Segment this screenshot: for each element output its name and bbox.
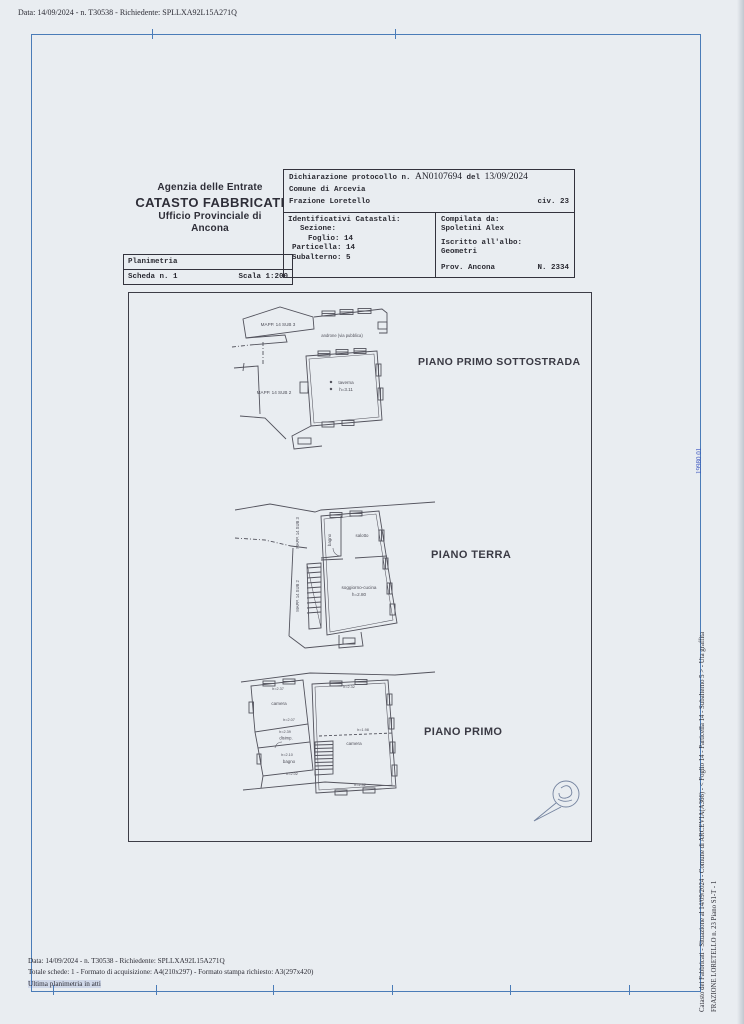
plan3-h-bottom-left: h=2.02 bbox=[286, 772, 298, 776]
plan1-androne-label: androne (via pubblica) bbox=[321, 333, 363, 338]
foglio-line: Foglio: 14 bbox=[308, 235, 431, 245]
plan3-h-disimp: h=2.39 bbox=[279, 730, 291, 734]
plan2-salotto-label: salotto bbox=[356, 533, 369, 538]
footer-last-plan-line: Ultima planimetria in atti bbox=[28, 980, 101, 988]
plan3-camera-right-label: camera bbox=[346, 741, 362, 746]
compilata-name: Spoletini Alex bbox=[441, 225, 569, 235]
frame-tick bbox=[152, 29, 153, 39]
floorplan-piano-primo: h=2.37 camera h=2.07 h=2.39 disimp. h=2.… bbox=[235, 662, 485, 817]
compilata-title: Compilata da: bbox=[441, 216, 569, 226]
comune-line: Comune di Arcevia bbox=[289, 186, 569, 196]
planimetria-sheet-row: Scheda n. 1 Scala 1:200 bbox=[124, 269, 292, 284]
plan2-bagno-label: bagno bbox=[327, 533, 332, 546]
scheda-number: Scheda n. 1 bbox=[128, 272, 178, 282]
frame-tick bbox=[510, 985, 511, 995]
particella-line: Particella: 14 bbox=[292, 244, 431, 254]
civ-number: civ. 23 bbox=[537, 198, 569, 208]
protocol-del-label: del bbox=[467, 174, 481, 182]
protocol-number: AN0107694 bbox=[415, 172, 462, 182]
frame-tick bbox=[395, 29, 396, 39]
plan3-disimp-label: disimp. bbox=[279, 736, 292, 741]
planimetria-title: Planimetria bbox=[124, 255, 292, 269]
plan2-mapp-sub3-label: MAPP. 14 SUB 3 bbox=[295, 517, 300, 549]
agency-office: CATASTO FABBRICATI bbox=[125, 195, 295, 210]
agency-province-label: Ufficio Provinciale di bbox=[125, 211, 295, 222]
plan1-labels: MAPP. 14 SUB 3 androne (via pubblica) MA… bbox=[257, 322, 364, 395]
agency-city: Ancona bbox=[125, 223, 295, 234]
plan1-mapp-sub3-label: MAPP. 14 SUB 3 bbox=[261, 322, 296, 327]
planimetria-card: Planimetria Scheda n. 1 Scala 1:200 bbox=[123, 254, 293, 285]
subalterno-line: Subalterno: 5 bbox=[292, 254, 431, 264]
footer-block: Data: 14/09/2024 - n. T30538 - Richieden… bbox=[28, 956, 313, 990]
plan3-camera-left-label: camera bbox=[271, 701, 287, 706]
plan3-walls bbox=[241, 672, 435, 795]
top-request-line: Data: 14/09/2024 - n. T30538 - Richieden… bbox=[18, 8, 237, 17]
plan1-mapp-sub2-label: MAPP. 14 SUB 2 bbox=[257, 390, 292, 395]
floorplan-piano-primo-sottostrada: MAPP. 14 SUB 3 androne (via pubblica) MA… bbox=[230, 296, 500, 461]
plan3-h-mid-left: h=2.07 bbox=[283, 718, 295, 722]
plan2-title: PIANO TERRA bbox=[431, 549, 511, 561]
albo-title: Iscritto all'albo: bbox=[441, 239, 569, 249]
floorplan-piano-terra: MAPP. 14 SUB 3 MAPP. 14 SUB 2 bagno salo… bbox=[235, 488, 485, 653]
plan1-room-label: taverna bbox=[338, 380, 354, 385]
compiler-cell: Compilata da: Spoletini Alex Iscritto al… bbox=[436, 213, 574, 278]
albo-value: Geometri bbox=[441, 248, 569, 258]
side-margin-note: Catasto dei Fabbricati - Situazione al 1… bbox=[697, 437, 720, 1012]
plan3-h-top-left: h=2.37 bbox=[272, 687, 284, 691]
sezione-line: Sezione: bbox=[300, 225, 431, 235]
scanned-cadastral-sheet: Data: 14/09/2024 - n. T30538 - Richieden… bbox=[0, 0, 744, 1024]
albo-number: N. 2334 bbox=[537, 264, 569, 274]
frame-tick bbox=[629, 985, 630, 995]
protocol-label: Dichiarazione protocollo n. bbox=[289, 174, 411, 182]
identificativi-title: Identificativi Catastali: bbox=[288, 216, 431, 226]
plan1-room-height: h=3.11 bbox=[339, 387, 353, 392]
agency-name: Agenzia delle Entrate bbox=[125, 182, 295, 193]
side-note-line1: Catasto dei Fabbricati - Situazione al 1… bbox=[697, 437, 709, 1012]
declaration-table: Dichiarazione protocollo n. AN0107694 de… bbox=[283, 169, 575, 278]
plan2-mapp-sub2-label: MAPP. 14 SUB 2 bbox=[295, 580, 300, 612]
frame-tick bbox=[392, 985, 393, 995]
plan3-title: PIANO PRIMO bbox=[424, 726, 502, 738]
cadastral-ids-cell: Identificativi Catastali: Sezione: Fogli… bbox=[284, 213, 436, 278]
declaration-protocol-section: Dichiarazione protocollo n. AN0107694 de… bbox=[284, 170, 574, 212]
footer-request-line: Data: 14/09/2024 - n. T30538 - Richieden… bbox=[28, 956, 313, 967]
plan2-room-height: h=2.80 bbox=[352, 592, 367, 597]
plan3-h-top-right: h=2.32 bbox=[343, 685, 355, 689]
plan2-room-label: soggiorno-cucina bbox=[342, 585, 377, 590]
scala-value: Scala 1:200 bbox=[238, 272, 288, 282]
surveyor-stamp-icon bbox=[528, 775, 588, 830]
side-note-line2: FRAZIONE LORETELLO n. 23 Piano S1-T - 1 bbox=[709, 437, 721, 1012]
frazione-line: Frazione Loretello bbox=[289, 198, 370, 208]
plan3-h-mid-right: h=1.98 bbox=[357, 728, 369, 732]
protocol-date: 13/09/2024 bbox=[485, 172, 528, 182]
plan3-bagno-label: bagno bbox=[283, 759, 296, 764]
footer-format-line: Totale schede: 1 - Formato di acquisizio… bbox=[28, 967, 313, 978]
plan3-h-bottom-right: h=2.32 bbox=[354, 783, 366, 787]
agency-header: Agenzia delle Entrate CATASTO FABBRICATI… bbox=[125, 182, 295, 234]
plan2-walls bbox=[235, 502, 435, 648]
plan3-h-bagno: h=2.10 bbox=[281, 753, 293, 757]
plan1-title: PIANO PRIMO SOTTOSTRADA bbox=[418, 356, 580, 368]
plan1-walls bbox=[232, 307, 387, 449]
side-blue-id: 19980 01 bbox=[695, 448, 703, 474]
prov-line: Prov. Ancona bbox=[441, 264, 495, 274]
